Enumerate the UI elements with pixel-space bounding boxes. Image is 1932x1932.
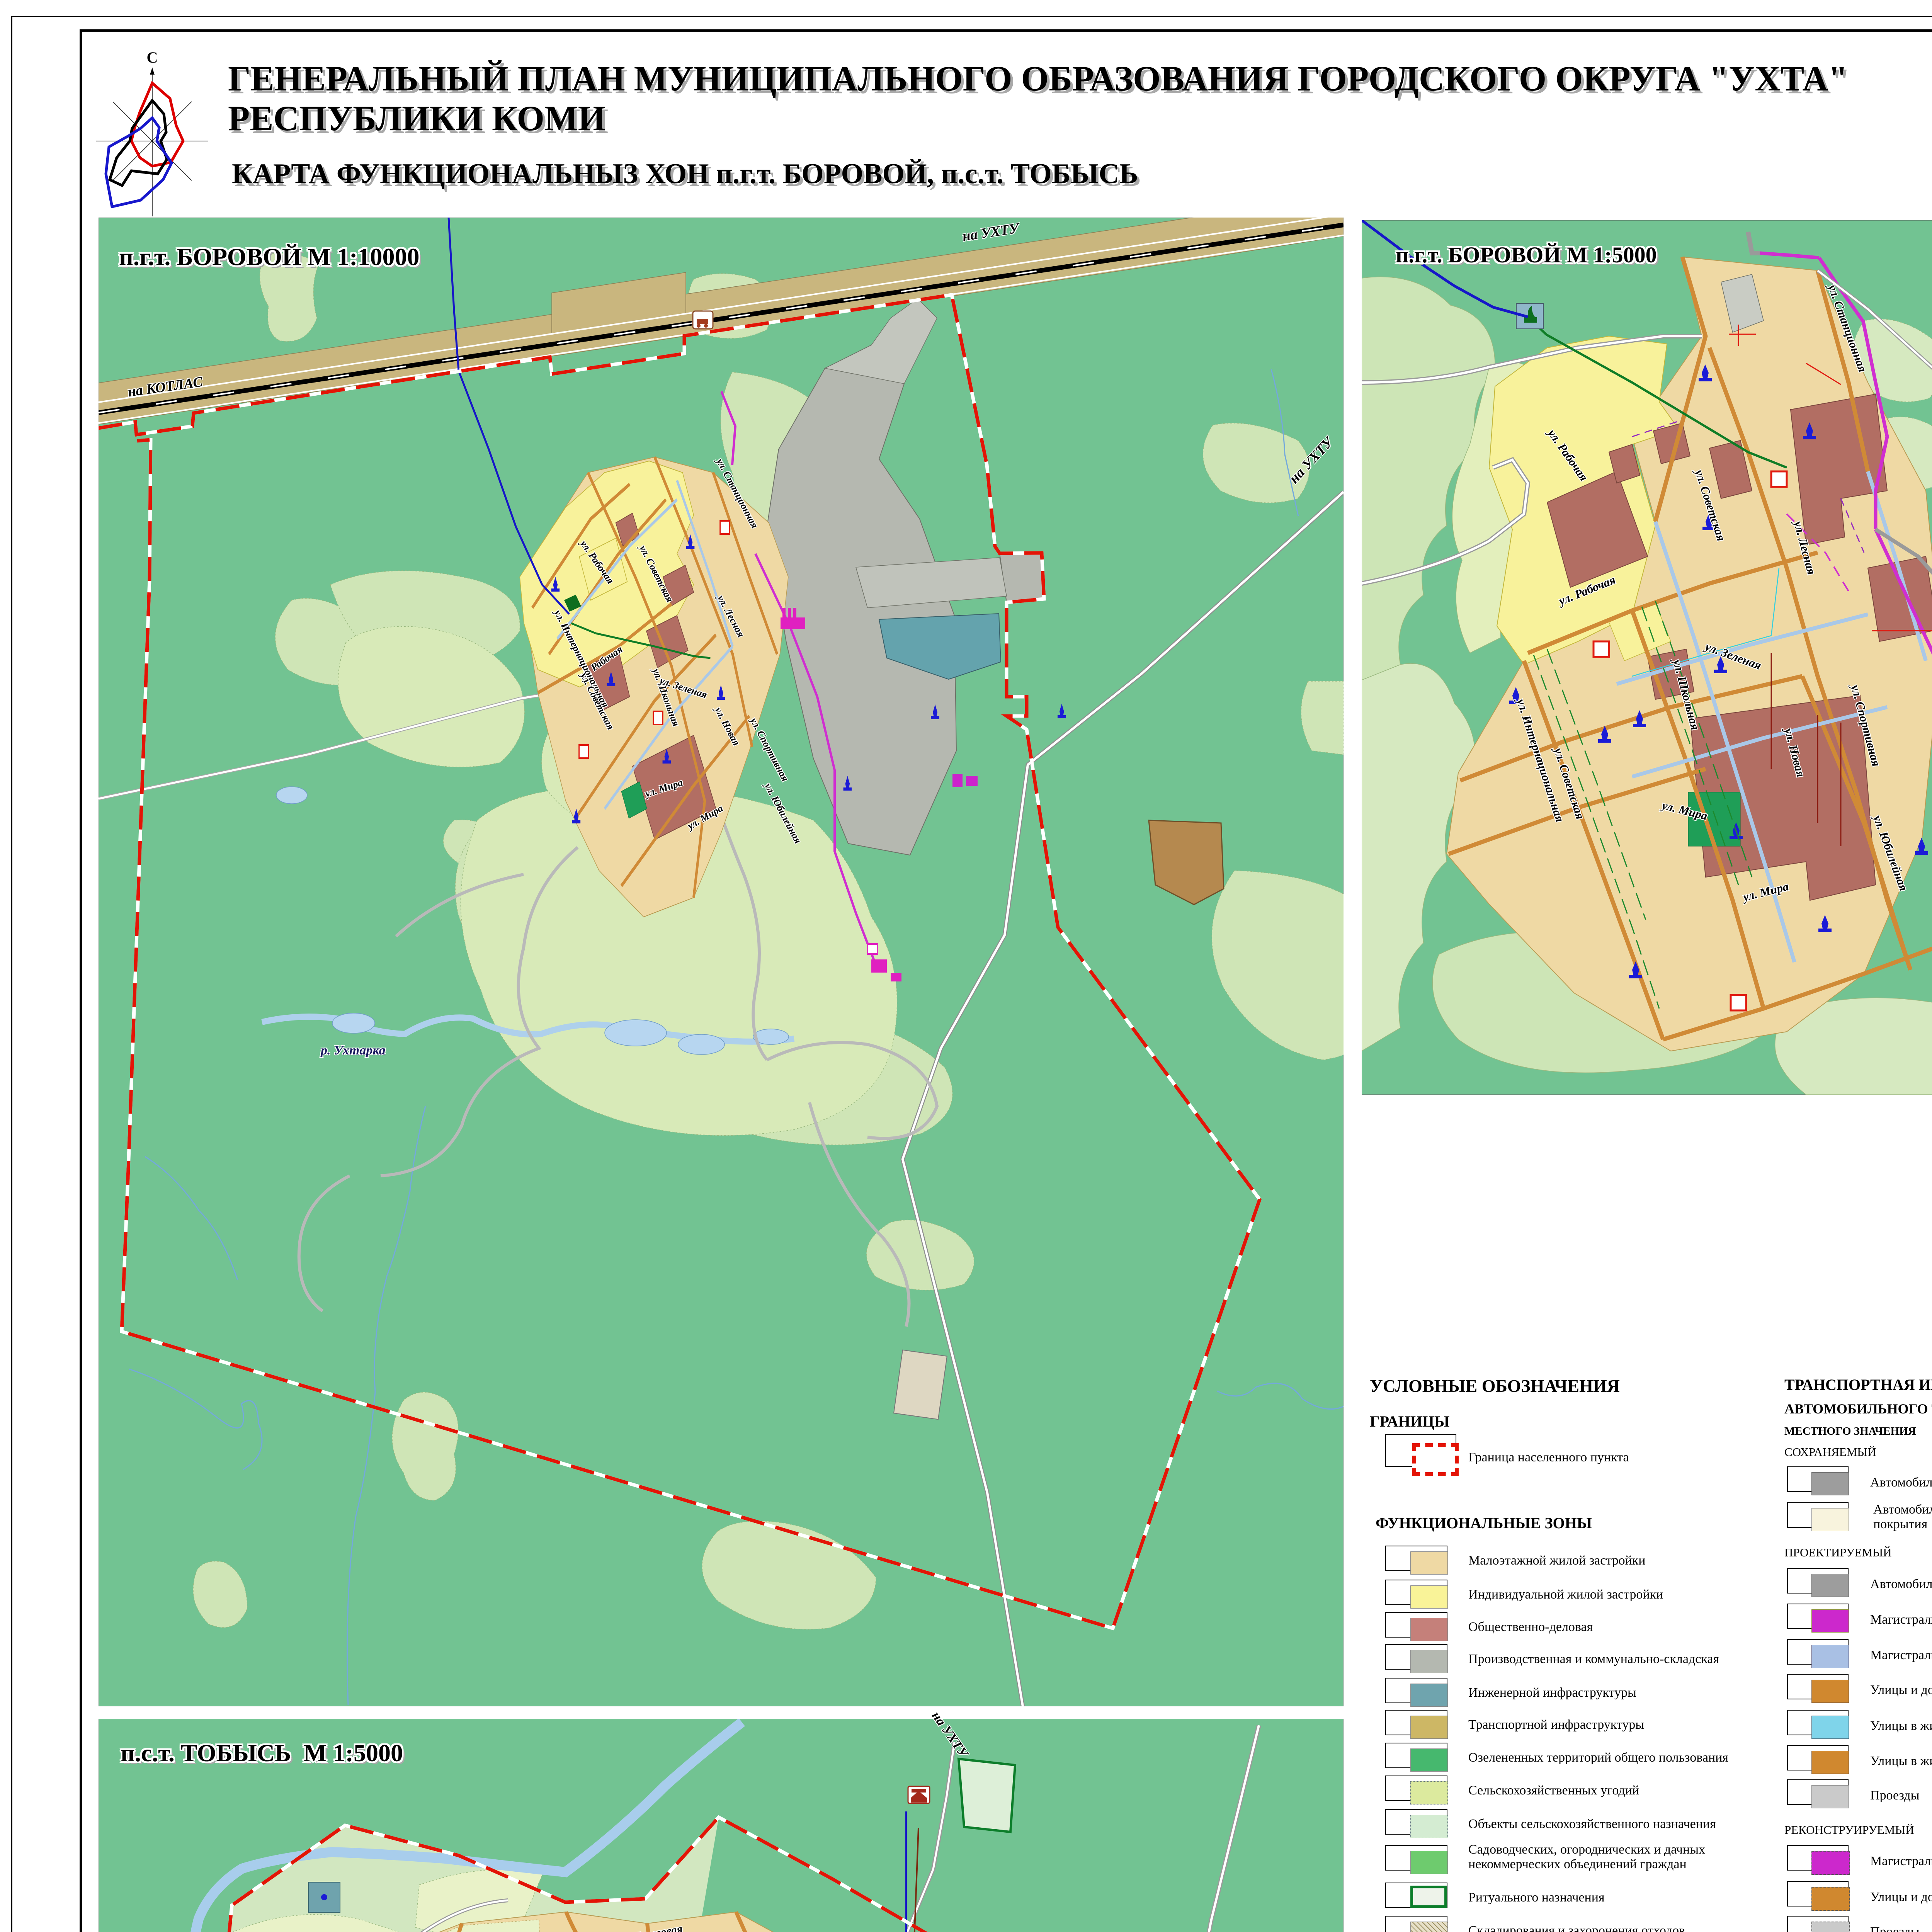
svg-text:С: С bbox=[147, 49, 158, 66]
